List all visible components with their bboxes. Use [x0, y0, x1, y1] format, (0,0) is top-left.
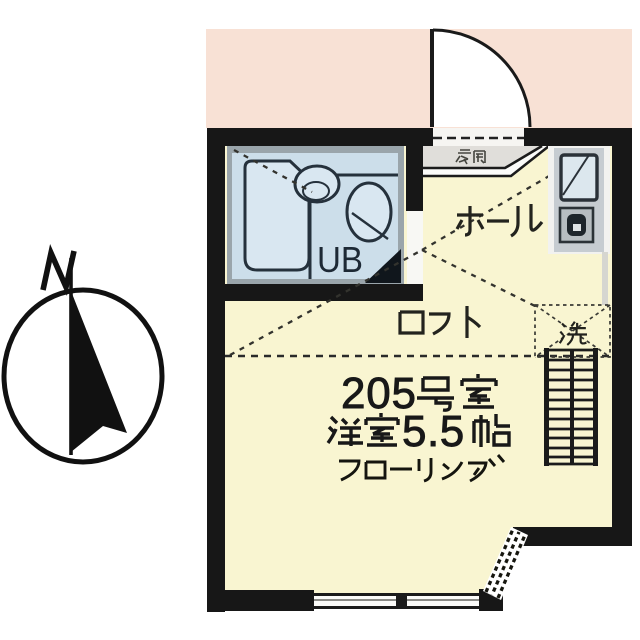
svg-text:UB: UB	[317, 239, 363, 280]
svg-text:5.5: 5.5	[402, 407, 465, 456]
